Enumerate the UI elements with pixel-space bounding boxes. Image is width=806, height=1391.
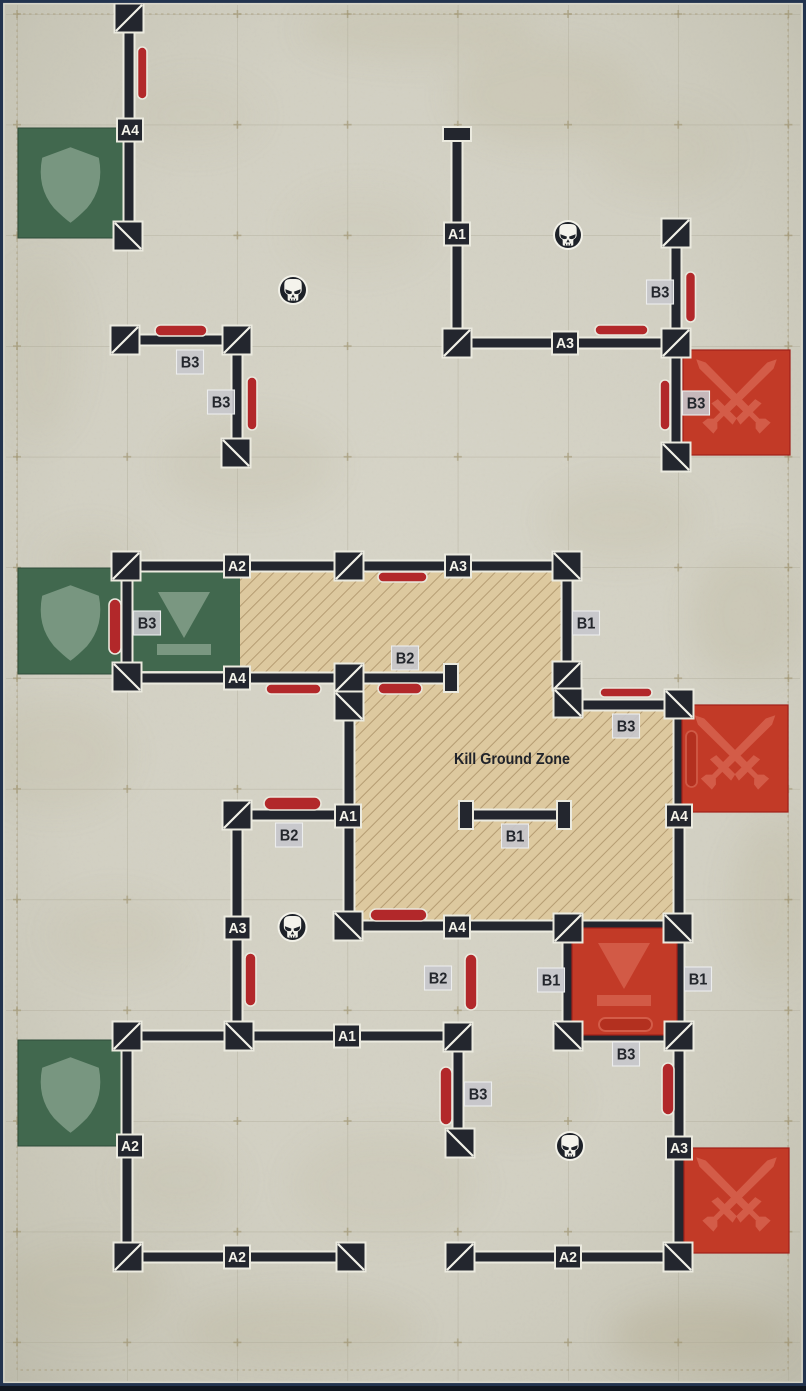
svg-text:Kill Ground Zone: Kill Ground Zone — [454, 751, 570, 768]
svg-text:B2: B2 — [429, 970, 448, 988]
svg-text:A1: A1 — [338, 1029, 356, 1045]
svg-text:A4: A4 — [448, 920, 467, 936]
svg-text:A4: A4 — [121, 123, 140, 139]
svg-text:B3: B3 — [687, 395, 706, 413]
svg-text:A3: A3 — [228, 921, 246, 937]
svg-text:B1: B1 — [542, 972, 561, 990]
svg-text:B2: B2 — [396, 650, 415, 668]
svg-text:A3: A3 — [449, 559, 467, 575]
svg-text:A2: A2 — [121, 1139, 139, 1155]
svg-text:A3: A3 — [556, 336, 574, 352]
svg-text:B3: B3 — [212, 394, 231, 412]
svg-text:A2: A2 — [228, 1250, 246, 1266]
svg-text:B3: B3 — [617, 1046, 636, 1064]
svg-text:A2: A2 — [228, 559, 246, 575]
svg-text:A2: A2 — [559, 1250, 577, 1266]
svg-text:A4: A4 — [228, 671, 247, 687]
svg-text:B3: B3 — [617, 718, 636, 736]
svg-text:B3: B3 — [181, 354, 200, 372]
svg-text:B2: B2 — [280, 827, 299, 845]
svg-text:A1: A1 — [339, 809, 357, 825]
svg-text:B3: B3 — [138, 615, 157, 633]
svg-text:B3: B3 — [651, 284, 670, 302]
svg-text:A3: A3 — [670, 1141, 688, 1157]
svg-text:B1: B1 — [577, 615, 596, 633]
svg-text:B1: B1 — [506, 828, 525, 846]
svg-text:A1: A1 — [448, 227, 466, 243]
svg-text:B1: B1 — [689, 971, 708, 989]
svg-text:A4: A4 — [670, 809, 689, 825]
svg-text:B3: B3 — [469, 1086, 488, 1104]
